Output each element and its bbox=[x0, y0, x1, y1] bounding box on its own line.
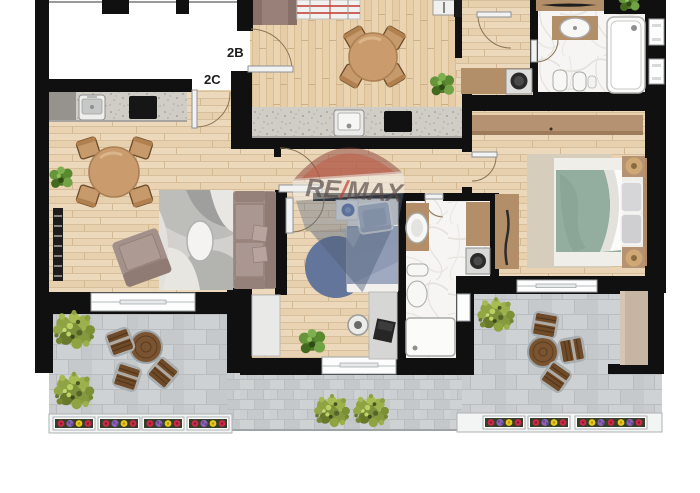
svg-text:2B: 2B bbox=[227, 45, 244, 60]
svg-text:2C: 2C bbox=[204, 72, 221, 87]
